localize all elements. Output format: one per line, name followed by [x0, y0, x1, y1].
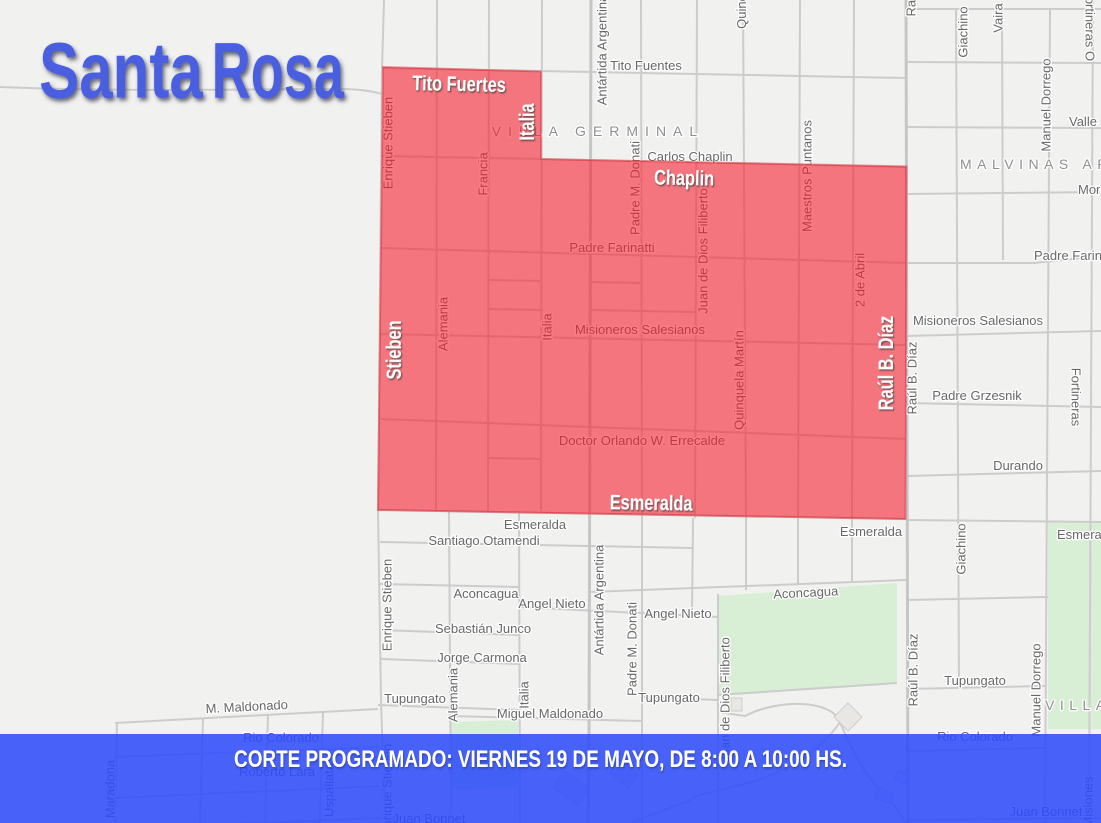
- svg-text:Jorge Carmona: Jorge Carmona: [437, 650, 527, 665]
- svg-text:Vaira: Vaira: [991, 3, 1006, 33]
- svg-text:Quinquela Martín: Quinquela Martín: [734, 0, 749, 29]
- svg-text:Tupungato: Tupungato: [384, 691, 446, 706]
- svg-text:Santiago Otamendi: Santiago Otamendi: [428, 533, 539, 548]
- svg-text:Fortineras O: Fortineras O: [1083, 0, 1098, 61]
- svg-text:Raúl B. Díaz: Raúl B. Díaz: [874, 316, 897, 411]
- svg-text:Giachino: Giachino: [956, 6, 971, 57]
- svg-text:Moreno: Moreno: [1078, 182, 1101, 197]
- svg-text:Tito Fuertes: Tito Fuertes: [412, 71, 506, 96]
- svg-text:Santa: Santa: [39, 25, 204, 114]
- svg-text:Italia: Italia: [517, 681, 532, 709]
- svg-text:Manuel Dorrego: Manuel Dorrego: [1039, 58, 1054, 151]
- svg-text:Tito Fuentes: Tito Fuentes: [610, 58, 682, 73]
- svg-text:VILLA: VILLA: [1045, 697, 1101, 713]
- svg-text:Esmeralda: Esmeralda: [504, 517, 567, 532]
- svg-text:Aconcagua: Aconcagua: [453, 586, 519, 601]
- svg-text:Giachino: Giachino: [954, 523, 969, 574]
- svg-text:Antártida Argentina: Antártida Argentina: [595, 0, 610, 105]
- svg-text:CORTE PROGRAMADO: VIERNES 19 D: CORTE PROGRAMADO: VIERNES 19 DE MAYO, DE…: [234, 745, 847, 773]
- svg-text:Fortineras: Fortineras: [1069, 368, 1084, 427]
- svg-text:Esmeralda: Esmeralda: [1057, 527, 1101, 542]
- svg-text:Chaplin: Chaplin: [654, 165, 715, 190]
- svg-text:Manuel Dorrego: Manuel Dorrego: [1029, 643, 1044, 736]
- svg-text:Angel Nieto: Angel Nieto: [644, 606, 711, 621]
- svg-text:Raúl B. Díaz: Raúl B. Díaz: [906, 634, 921, 707]
- svg-text:Stieben: Stieben: [382, 320, 405, 379]
- svg-text:Tupungato: Tupungato: [944, 673, 1006, 688]
- svg-text:Angel Nieto: Angel Nieto: [518, 596, 585, 611]
- svg-text:Tupungato: Tupungato: [638, 690, 700, 705]
- svg-text:Esmeralda: Esmeralda: [840, 524, 903, 539]
- svg-text:Padre Farinatti: Padre Farinatti: [1034, 248, 1101, 263]
- svg-text:Misioneros Salesianos: Misioneros Salesianos: [913, 313, 1044, 328]
- svg-text:Alemania: Alemania: [446, 667, 461, 722]
- svg-text:Enrique Stieben: Enrique Stieben: [380, 559, 395, 652]
- svg-text:Durando: Durando: [993, 458, 1043, 473]
- svg-text:Raúl B. Díaz: Raúl B. Díaz: [904, 0, 919, 16]
- svg-text:Sebastián Junco: Sebastián Junco: [435, 621, 531, 636]
- svg-text:Padre M. Donati: Padre M. Donati: [625, 602, 640, 696]
- svg-text:Miguel Maldonado: Miguel Maldonado: [497, 706, 603, 721]
- svg-text:Rosa: Rosa: [212, 27, 345, 115]
- svg-text:Antártida Argentina: Antártida Argentina: [592, 544, 607, 655]
- svg-text:MALVINAS ARG: MALVINAS ARG: [960, 156, 1101, 172]
- svg-text:Padre Grzesnik: Padre Grzesnik: [932, 388, 1022, 403]
- svg-text:Italia: Italia: [515, 103, 538, 141]
- svg-text:Valle: Valle: [1069, 114, 1097, 129]
- svg-text:Esmeralda: Esmeralda: [610, 490, 694, 515]
